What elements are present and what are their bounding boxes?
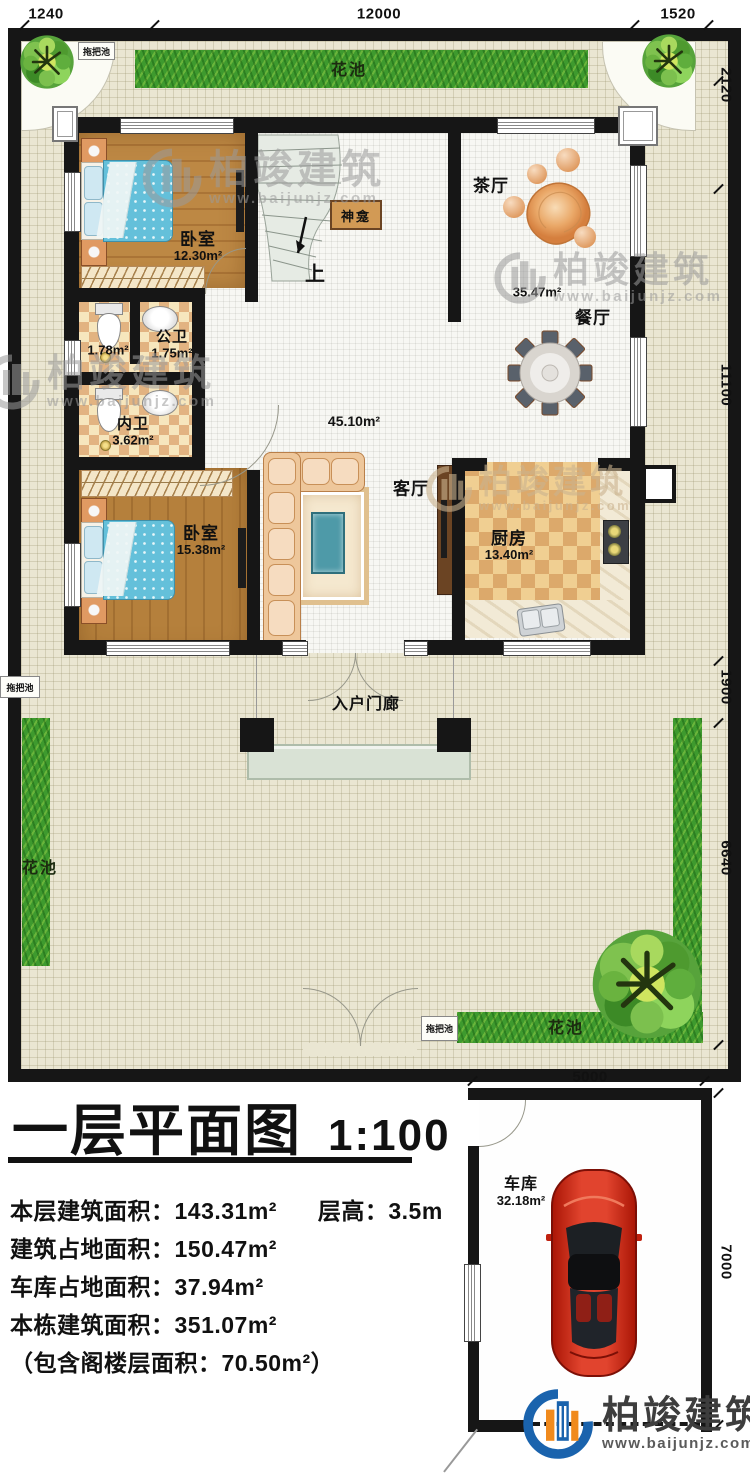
room-label-dining: 餐厅 <box>575 308 611 327</box>
window <box>64 543 81 607</box>
wall-segment <box>452 458 465 653</box>
room-label-private-bath: 内卫 3.62m² <box>112 416 153 447</box>
tv-panel <box>441 500 447 558</box>
room-label-living: 客厅 <box>393 479 429 498</box>
tea-stool <box>574 226 596 248</box>
coffee-table <box>311 512 345 574</box>
window <box>64 172 81 232</box>
flower-bed-label: 花池 <box>22 854 58 878</box>
mop-sink-label: 拖把池 <box>78 42 115 60</box>
wall-segment <box>448 117 461 322</box>
scale-text: 1:100 <box>328 1111 451 1161</box>
dimension-label: 1520 <box>660 6 695 23</box>
room-label-living-area: 45.10m² <box>328 414 380 430</box>
shrine-label: 神龛 <box>341 206 371 225</box>
room-label-tea-hall: 茶厅 <box>473 176 509 195</box>
sink-basin <box>540 607 560 628</box>
sofa-cushion <box>331 458 359 485</box>
company-logo-icon <box>522 1388 594 1460</box>
flower-bed-label: 花池 <box>548 1014 584 1038</box>
tea-stool <box>527 164 547 184</box>
wall-segment <box>701 1088 712 1432</box>
shrine-box: 神龛 <box>330 200 382 230</box>
porch-column <box>437 718 471 752</box>
dimension-label: 2120 <box>718 67 735 102</box>
wall-segment <box>468 1088 712 1100</box>
company-logo: 柏竣建筑 www.baijunjz.com <box>522 1388 750 1460</box>
dimension-label: 1900 <box>718 669 735 704</box>
mop-sink-label: 拖把池 <box>421 1016 458 1041</box>
title-underline <box>8 1157 412 1163</box>
wall-segment <box>130 302 140 364</box>
wall-segment <box>598 458 632 471</box>
dining-table-set <box>504 327 596 419</box>
pillow <box>84 526 103 559</box>
window <box>404 641 428 656</box>
dimension-label: 12000 <box>357 6 401 23</box>
window <box>64 340 81 376</box>
wall-segment <box>64 288 205 302</box>
stairs-up-label: 上 <box>305 258 325 287</box>
car-top-view <box>546 1166 642 1380</box>
window <box>630 337 647 427</box>
tree-icon <box>640 32 698 90</box>
wall-segment <box>245 117 258 302</box>
tree-icon <box>588 925 706 1043</box>
tv-panel <box>236 170 244 232</box>
sofa-cushion <box>268 528 295 560</box>
dimension-label: 11100 <box>718 364 735 407</box>
flower-bed-left <box>22 718 50 966</box>
stove-burner <box>608 525 621 538</box>
sofa-cushion <box>268 458 296 485</box>
floor-drain <box>100 440 111 451</box>
room-label-bedroom2: 卧室 15.38m² <box>177 524 225 558</box>
sink-basin <box>521 609 541 630</box>
pillow <box>84 166 103 200</box>
planter-box <box>52 106 78 142</box>
tv-panel <box>238 528 246 588</box>
wall-segment <box>64 457 205 470</box>
drawing-title: 一层平面图 1:100 <box>12 1086 451 1167</box>
window <box>497 118 595 134</box>
flue-box <box>642 465 676 503</box>
garage-door-opening <box>468 1100 479 1146</box>
nightstand <box>81 238 107 266</box>
room-label-bedroom1: 卧室 12.30m² <box>174 230 222 264</box>
porch-outline <box>453 655 454 721</box>
sofa-cushion <box>268 564 295 596</box>
tree-icon <box>18 33 76 91</box>
sofa-cushion <box>268 492 295 524</box>
porch-outline <box>256 655 257 721</box>
driveway-mark <box>443 1429 478 1473</box>
mop-sink-label: 拖把池 <box>0 676 40 698</box>
room-label-dining-area: 35.47m² <box>513 286 561 301</box>
floor-plan-page: 神龛 卧室 12.30m² 1.78m² <box>0 0 750 1477</box>
planter-box <box>618 106 658 146</box>
sofa-cushion <box>302 458 330 485</box>
window <box>282 641 308 656</box>
stat-line: 建筑占地面积：150.47m² <box>10 1230 277 1264</box>
dimension-label: 1240 <box>28 6 63 23</box>
tea-stool <box>503 196 525 218</box>
room-label-public-bath: 公卫 1.75m² <box>151 329 192 360</box>
stat-line: 本层建筑面积：143.31m² 层高：3.5m <box>10 1192 443 1226</box>
dimension-label: 5000 <box>572 1069 607 1086</box>
tea-stool <box>556 148 580 172</box>
wall-segment <box>64 372 205 385</box>
stat-line: 本栋建筑面积：351.07m² <box>10 1306 277 1340</box>
stove-burner <box>608 543 621 556</box>
room-label-kitchen: 厨房 13.40m² <box>485 529 533 563</box>
sink <box>142 390 178 416</box>
room-label-bath-stall: 1.78m² <box>87 344 128 359</box>
window <box>106 641 230 656</box>
window <box>120 118 234 134</box>
wall-segment <box>247 470 260 653</box>
stat-line: （包含阁楼层面积：70.50m²） <box>10 1344 334 1378</box>
dimension-label: 6640 <box>718 840 735 875</box>
window <box>464 1264 481 1342</box>
dim-tick <box>713 1088 724 1099</box>
room-label-garage: 车库 32.18m² <box>497 1176 545 1208</box>
window <box>503 641 591 656</box>
stat-line: 车库占地面积：37.94m² <box>10 1268 264 1302</box>
sofa-cushion <box>268 600 295 636</box>
dimension-label: 7000 <box>718 1244 735 1279</box>
room-label-porch: 入户门廊 <box>332 696 400 714</box>
window <box>630 165 647 257</box>
flower-bed-label: 花池 <box>331 56 367 80</box>
porch-column <box>240 718 274 752</box>
title-text: 一层平面图 <box>12 1086 302 1167</box>
wall-segment <box>465 458 487 471</box>
nightstand <box>81 596 107 624</box>
